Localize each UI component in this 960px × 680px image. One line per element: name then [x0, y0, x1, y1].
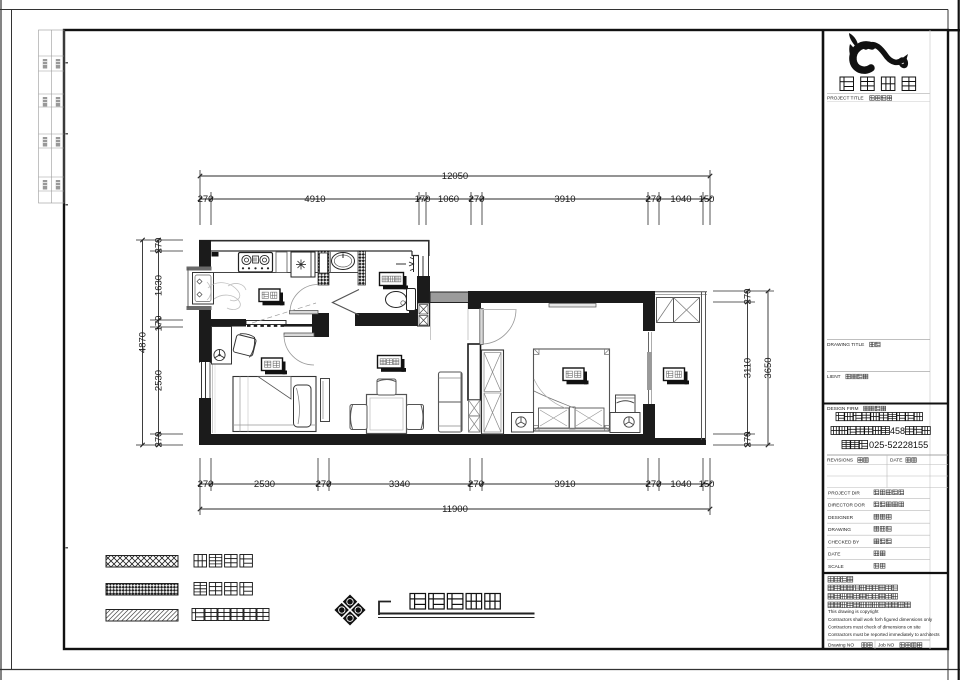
svg-text:DESIGNER: DESIGNER: [828, 515, 854, 521]
svg-text:270: 270: [198, 479, 214, 490]
svg-text:270: 270: [154, 432, 165, 448]
svg-text:3910: 3910: [554, 479, 575, 490]
svg-text:170: 170: [154, 316, 165, 332]
svg-text:2530: 2530: [254, 479, 275, 490]
svg-text:11900: 11900: [442, 504, 468, 515]
svg-text:1040: 1040: [670, 479, 691, 490]
svg-text:150: 150: [699, 194, 715, 205]
svg-text:3340: 3340: [389, 479, 410, 490]
svg-text:170: 170: [415, 194, 431, 205]
svg-text:DRAWING: DRAWING: [828, 527, 851, 533]
svg-text:DRAWING TITLE: DRAWING TITLE: [827, 342, 864, 348]
svg-text:270: 270: [154, 238, 165, 254]
svg-text:270: 270: [743, 289, 754, 305]
svg-text:Contractors shall work forh fi: Contractors shall work forh figured dime…: [828, 617, 933, 622]
svg-text:DATE: DATE: [828, 552, 840, 558]
svg-text:Contractors must check of dime: Contractors must check of dimensions on …: [828, 625, 921, 630]
svg-text:1060: 1060: [438, 194, 459, 205]
svg-text:458: 458: [890, 426, 905, 436]
svg-text:DESIGN FIRM: DESIGN FIRM: [827, 406, 858, 412]
svg-text:3110: 3110: [743, 358, 754, 378]
svg-text:3650: 3650: [763, 357, 774, 378]
svg-text:270: 270: [646, 479, 662, 490]
svg-text:Drawing NO: Drawing NO: [828, 643, 854, 649]
svg-text:270: 270: [468, 479, 484, 490]
svg-text:270: 270: [316, 479, 332, 490]
svg-text:12050: 12050: [442, 171, 468, 182]
svg-text:1630: 1630: [154, 275, 165, 296]
svg-text:PROJECT TITLE: PROJECT TITLE: [827, 96, 864, 102]
svg-text:CHECKED BY: CHECKED BY: [828, 540, 860, 546]
svg-text:4870: 4870: [138, 332, 149, 353]
svg-text:PROJECT DIR: PROJECT DIR: [828, 491, 860, 497]
svg-text:2530: 2530: [154, 370, 165, 391]
svg-text:270: 270: [198, 194, 214, 205]
svg-text:270: 270: [646, 194, 662, 205]
svg-text:270: 270: [743, 432, 754, 448]
svg-text:DATE: DATE: [890, 458, 902, 464]
svg-text:LIENT: LIENT: [827, 374, 841, 380]
svg-text:270: 270: [469, 194, 485, 205]
svg-text:This drawing is copyright: This drawing is copyright: [828, 609, 879, 614]
svg-text:3910: 3910: [554, 194, 575, 205]
svg-text:025-52228155: 025-52228155: [869, 440, 928, 450]
svg-text:Job NO: Job NO: [878, 643, 895, 649]
svg-text:Contractors must be reported i: Contractors must be reported immediately…: [828, 632, 940, 637]
svg-text:REVISIONS: REVISIONS: [827, 458, 853, 464]
svg-text:150: 150: [699, 479, 715, 490]
svg-text:DIRECTOR DOR: DIRECTOR DOR: [828, 503, 865, 509]
svg-text:4910: 4910: [304, 194, 325, 205]
svg-text:SCALE: SCALE: [828, 564, 844, 570]
svg-text:1040: 1040: [670, 194, 691, 205]
